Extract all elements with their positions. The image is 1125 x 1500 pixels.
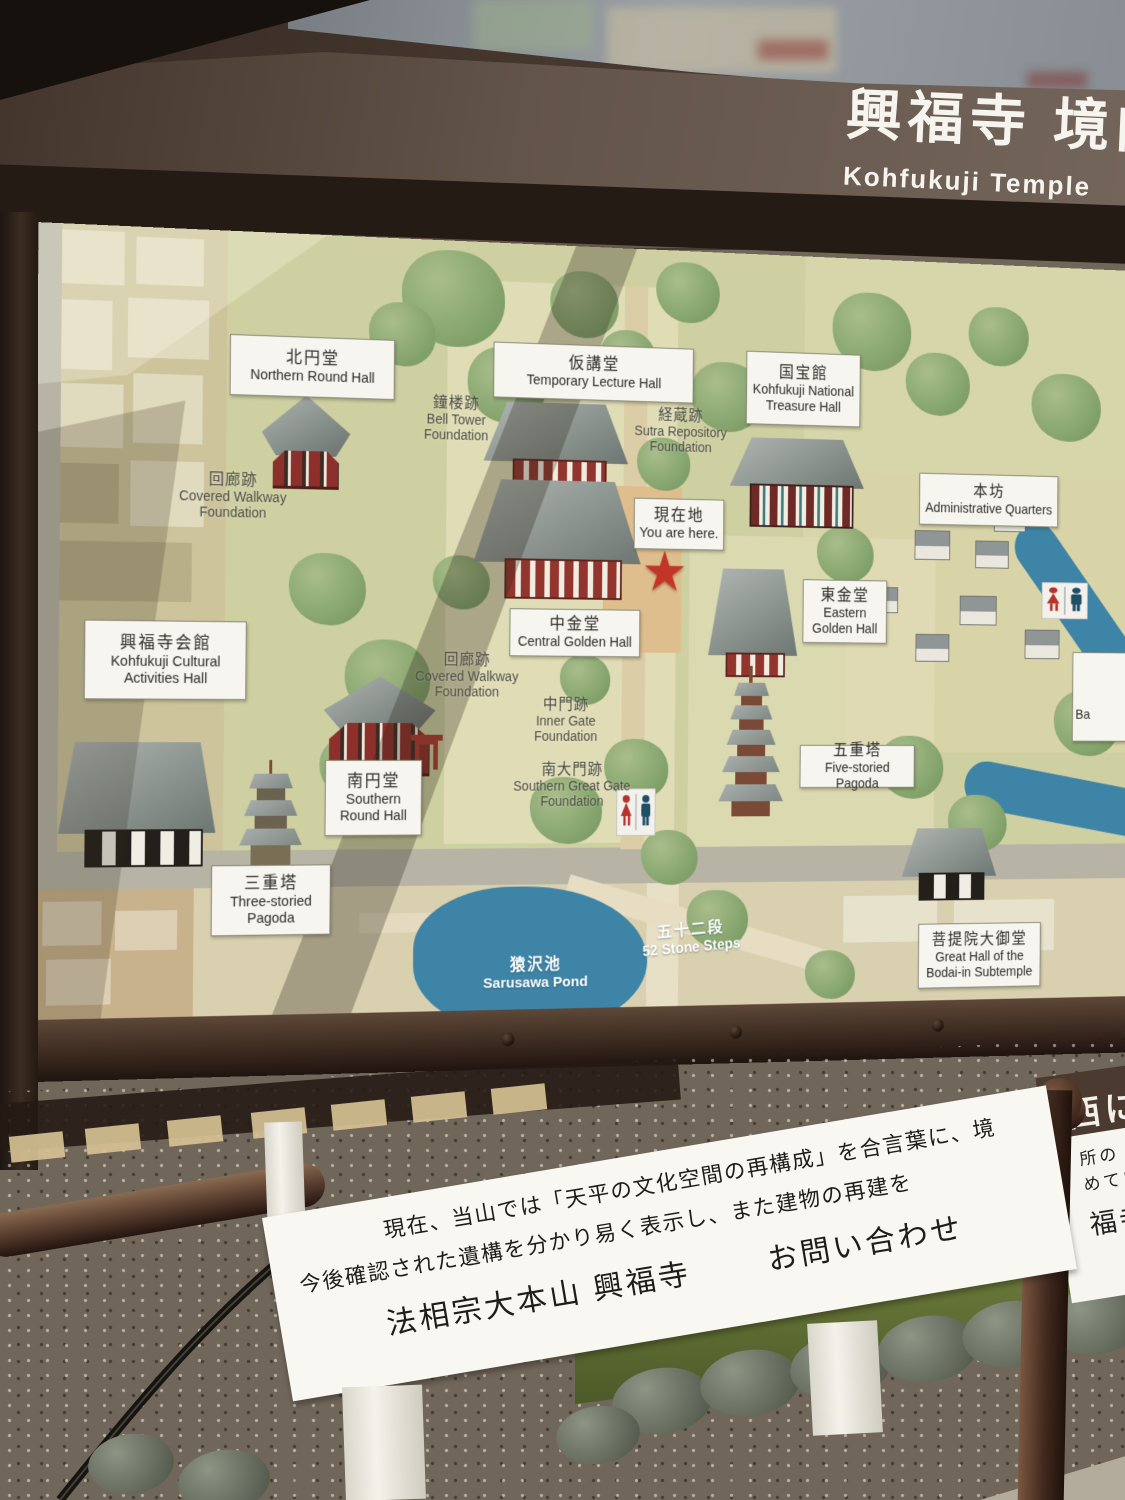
tree: [433, 555, 490, 610]
map-label-sutra-repository: 経蔵跡 Sutra Repository Foundation: [614, 406, 747, 456]
soffit-reflection-green: [473, 0, 593, 50]
map-surface: 鐘楼跡 Bell Tower Foundation 回廊跡 Covered Wa…: [32, 222, 1125, 1020]
admin-house: [1025, 630, 1060, 660]
label-en: Covered Walkway Foundation: [399, 669, 535, 700]
label-en-fragment: Ba: [1075, 708, 1090, 723]
sunlit-stone: [411, 1091, 467, 1123]
label-en: Inner Gate Foundation: [506, 714, 625, 744]
you-are-here-star-icon: ★: [641, 539, 688, 604]
label-jp: 中門跡: [506, 697, 625, 715]
city-block: [46, 959, 111, 1006]
map-label-five-storied-pagoda: 五重塔 Five-storied Pagoda: [800, 745, 915, 788]
map-label-southern-great-gate: 南大門跡 Southern Great Gate Foundation: [506, 762, 637, 809]
label-en: Great Hall of the Bodai-in Subtemple: [921, 949, 1037, 981]
map-label-southern-round-hall: 南円堂 Southern Round Hall: [325, 760, 423, 836]
map-label-bodai-in-great-hall: 菩提院大御堂 Great Hall of the Bodai-in Subtem…: [918, 922, 1041, 989]
label-en: Southern Round Hall: [328, 792, 418, 824]
label-jp: 中金堂: [513, 614, 637, 634]
bolt: [932, 1019, 944, 1032]
admin-house: [914, 530, 950, 560]
map-label-bell-tower-foundation: 鐘楼跡 Bell Tower Foundation: [399, 393, 513, 444]
sign-post: [807, 1320, 883, 1436]
label-jp: 南大門跡: [506, 762, 637, 779]
map-label-three-storied-pagoda: 三重塔 Three-storied Pagoda: [211, 864, 331, 936]
map-label-cultural-activities-hall: 興福寺会館 Kohfukuji Cultural Activities Hall: [84, 620, 247, 700]
map-label-eastern-golden-hall: 東金堂 Eastern Golden Hall: [802, 579, 887, 644]
admin-house: [975, 540, 1009, 568]
admin-house: [915, 634, 949, 662]
tree: [805, 950, 855, 1000]
city-block: [50, 462, 119, 523]
city-block: [133, 373, 203, 444]
photo-of-temple-map-sign: 興福寺 境内 Kohfukuji Temple: [0, 0, 1125, 1500]
label-en: Administrative Quarters: [922, 501, 1054, 519]
bolt: [730, 1025, 742, 1038]
map-label-national-treasure-hall: 国宝館 Kohfukuji National Treasure Hall: [746, 351, 861, 428]
label-en: Eastern Golden Hall: [806, 606, 884, 637]
label-jp: 北円堂: [234, 346, 392, 370]
map-label-covered-walkway-central: 回廊跡 Covered Walkway Foundation: [399, 651, 535, 699]
city-block: [45, 540, 192, 602]
label-jp: 興福寺会館: [88, 633, 243, 653]
city-block: [42, 901, 101, 946]
label-jp: 国宝館: [750, 362, 857, 383]
label-jp: 南円堂: [329, 772, 419, 791]
label-en: Three-storied Pagoda: [215, 894, 327, 927]
label-jp: 東金堂: [806, 586, 883, 605]
map-label-partial-right: Ba: [1072, 652, 1125, 742]
label-en: Sarusawa Pond: [463, 974, 608, 995]
label-jp: 三重塔: [215, 873, 327, 893]
tree: [289, 552, 367, 625]
map-label-central-golden-hall: 中金堂 Central Golden Hall: [509, 608, 640, 657]
sunlit-stone: [331, 1099, 387, 1131]
soffit-reflection-red: [758, 40, 828, 60]
sign-post: [342, 1385, 426, 1500]
torii-gate: [433, 741, 438, 770]
label-jp: 菩提院大御堂: [922, 930, 1038, 949]
map-label-inner-gate: 中門跡 Inner Gate Foundation: [506, 697, 625, 744]
label-en: Southern Great Gate Foundation: [506, 779, 637, 809]
sign-title: 興福寺 境内 Kohfukuji Temple: [842, 70, 1125, 213]
restroom-icon: [1041, 582, 1088, 619]
sarusawa-pond-label: 猿沢池 Sarusawa Pond: [463, 954, 608, 994]
label-en: Central Golden Hall: [513, 635, 637, 652]
label-en: Kohfukuji National Treasure Hall: [750, 382, 858, 416]
label-en: Sutra Repository Foundation: [614, 423, 747, 456]
label-jp: 本坊: [923, 481, 1055, 502]
map-label-northern-round-hall: 北円堂 Northern Round Hall: [230, 334, 395, 400]
label-en: Covered Walkway Foundation: [163, 488, 302, 522]
board-left-frame: [0, 212, 38, 1170]
label-en: Bell Tower Foundation: [399, 411, 513, 444]
label-jp: 現在地: [637, 505, 720, 525]
map-board: 鐘楼跡 Bell Tower Foundation 回廊跡 Covered Wa…: [31, 222, 1125, 1082]
label-jp: 五重塔: [803, 741, 911, 759]
map-label-covered-walkway-north: 回廊跡 Covered Walkway Foundation: [163, 470, 302, 522]
sunlit-stone: [167, 1115, 223, 1147]
map-label-temporary-lecture-hall: 仮講堂 Temporary Lecture Hall: [493, 342, 694, 404]
map-label-administrative-quarters: 本坊 Administrative Quarters: [919, 473, 1058, 528]
bolt: [502, 1033, 515, 1047]
city-block: [128, 298, 210, 360]
label-en: Northern Round Hall: [234, 367, 392, 388]
city-block: [115, 910, 177, 951]
label-en: Kohfukuji Cultural Activities Hall: [88, 654, 243, 687]
tree: [641, 830, 698, 885]
sign-title-jp: 興福寺 境内: [844, 70, 1125, 172]
label-en: Five-storied Pagoda: [803, 761, 911, 791]
city-block: [136, 236, 204, 286]
admin-house: [960, 596, 997, 626]
